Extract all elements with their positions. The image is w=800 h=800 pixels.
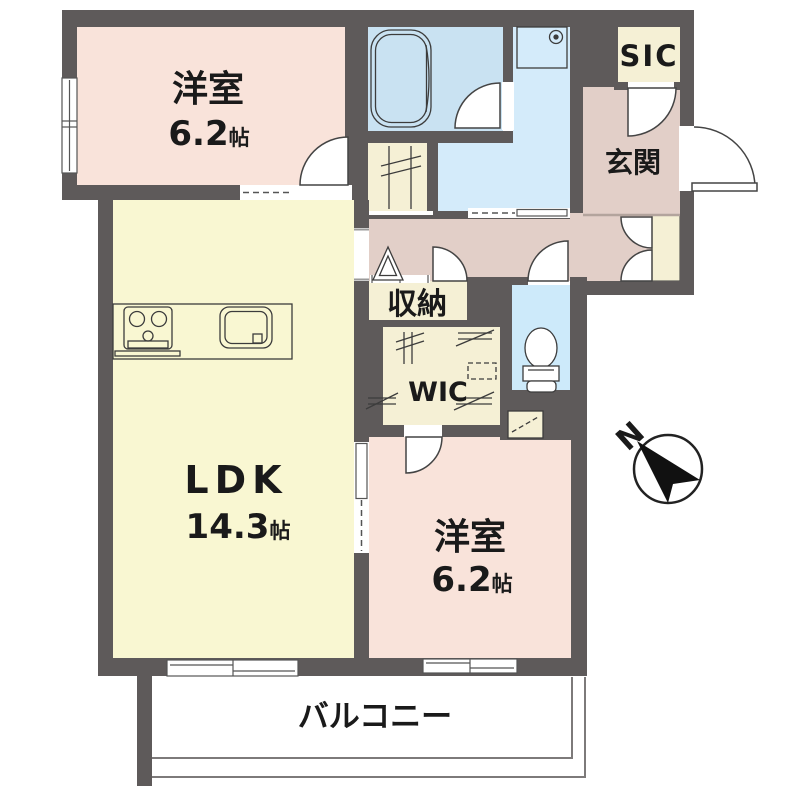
entry-door-leaf <box>692 183 757 191</box>
size-unit: 帖 <box>229 126 250 150</box>
storage-label: 収納 <box>387 287 447 322</box>
toilet-tank <box>523 366 559 381</box>
compass: N <box>610 415 702 503</box>
bathroom-door-gap <box>502 82 514 130</box>
entry-door-swing <box>694 127 755 187</box>
size-unit: 帖 <box>269 519 290 543</box>
room-wic-area <box>383 327 500 425</box>
size-value: 6.2 <box>431 560 491 600</box>
sic-label: SIC <box>620 39 679 73</box>
size-value: 14.3 <box>186 507 270 547</box>
wall-segment <box>427 143 438 211</box>
room-ldk-area <box>113 200 354 658</box>
wall-segment <box>680 10 694 127</box>
wic-label: WIC <box>408 377 468 408</box>
toilet-bowl <box>525 328 557 368</box>
wall-segment <box>570 27 583 213</box>
linen-closet-area <box>368 143 427 211</box>
pipe-space <box>508 411 543 438</box>
ldk-balcony-window <box>167 660 298 676</box>
ldk-name: LDK <box>184 458 287 502</box>
wall-segment <box>354 553 369 676</box>
balcony-label: バルコニー <box>298 699 452 735</box>
wall-segment <box>368 131 513 143</box>
toilet-base <box>527 381 556 392</box>
room-washroom-area <box>513 27 570 213</box>
wall-segment <box>680 190 694 295</box>
wall-segment <box>354 200 369 228</box>
wall-segment <box>570 281 694 295</box>
entry-door-gap <box>679 126 695 191</box>
floor-plan-drawing: N 洋室 6.2帖 LDK 14.3帖 洋室 6.2帖 収納 WIC 玄関 SI… <box>0 0 800 800</box>
sliding-door-panel <box>356 444 367 499</box>
pipe-space-box <box>508 411 543 438</box>
wall-segment <box>62 10 694 27</box>
bedroom-top-name: 洋室 <box>172 69 244 110</box>
bedroom-bottom-balcony-window <box>423 659 517 673</box>
wall-segment <box>512 277 528 285</box>
washer-drain-center <box>554 35 558 39</box>
size-value: 6.2 <box>168 114 228 154</box>
wall-segment <box>98 200 113 676</box>
wall-segment <box>137 676 152 786</box>
wall-segment <box>503 27 513 84</box>
closet-front-line <box>369 211 433 215</box>
wall-segment <box>583 27 618 87</box>
size-unit: 帖 <box>492 572 513 596</box>
sliding-door-panel <box>517 210 567 217</box>
entry-door <box>692 127 757 191</box>
wall-segment <box>571 295 587 676</box>
entrance-label: 玄関 <box>605 146 661 179</box>
wall-segment <box>614 82 628 90</box>
wall-segment <box>368 425 404 437</box>
bedroom-top-window <box>62 78 77 173</box>
ldk-hall-opening <box>354 228 369 281</box>
bedroom-bottom-name: 洋室 <box>434 517 506 558</box>
wic-door-gap <box>404 425 442 437</box>
wall-segment <box>368 327 383 432</box>
hall-closet-area <box>652 215 680 281</box>
wall-segment <box>354 281 369 442</box>
room-washroom-area-lower <box>438 143 513 213</box>
toilet-fixture <box>523 328 559 392</box>
floor-plan-page: N 洋室 6.2帖 LDK 14.3帖 洋室 6.2帖 収納 WIC 玄関 SI… <box>0 0 800 800</box>
